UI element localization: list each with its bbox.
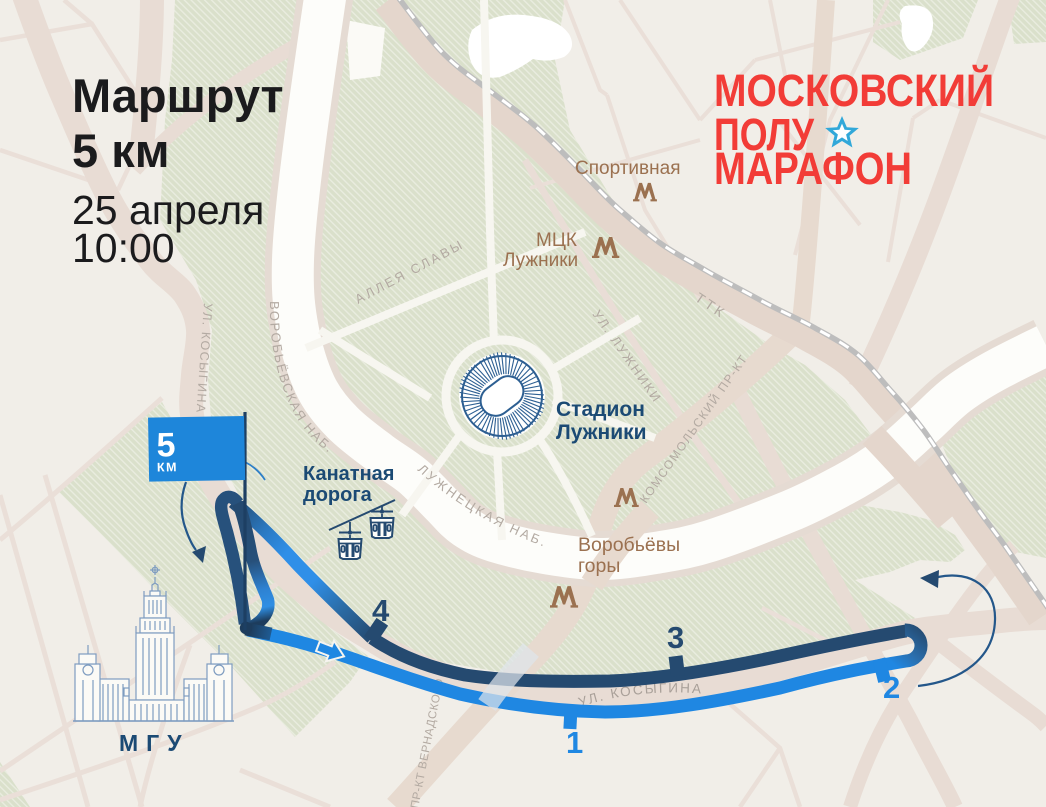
- svg-text:5: 5: [156, 426, 176, 464]
- svg-text:МГУ: МГУ: [119, 730, 190, 756]
- svg-text:Лужники: Лужники: [503, 250, 578, 271]
- svg-text:горы: горы: [578, 555, 620, 577]
- svg-text:дорога: дорога: [303, 484, 373, 506]
- svg-text:Воробьёвы: Воробьёвы: [578, 534, 680, 556]
- svg-text:Маршрут: Маршрут: [72, 69, 284, 122]
- svg-text:Лужники: Лужники: [556, 421, 647, 444]
- svg-text:МАРАФОН: МАРАФОН: [714, 143, 912, 194]
- svg-text:КМ: КМ: [157, 460, 178, 474]
- svg-text:4: 4: [372, 593, 390, 628]
- svg-text:Стадион: Стадион: [556, 398, 645, 421]
- svg-text:Спортивная: Спортивная: [575, 158, 680, 179]
- svg-text:МЦК: МЦК: [536, 230, 577, 251]
- svg-text:2: 2: [883, 670, 900, 705]
- svg-text:3: 3: [667, 620, 684, 655]
- svg-text:Канатная: Канатная: [303, 463, 394, 485]
- svg-text:1: 1: [566, 725, 583, 760]
- svg-text:10:00: 10:00: [72, 225, 175, 271]
- svg-text:5 км: 5 км: [72, 124, 170, 177]
